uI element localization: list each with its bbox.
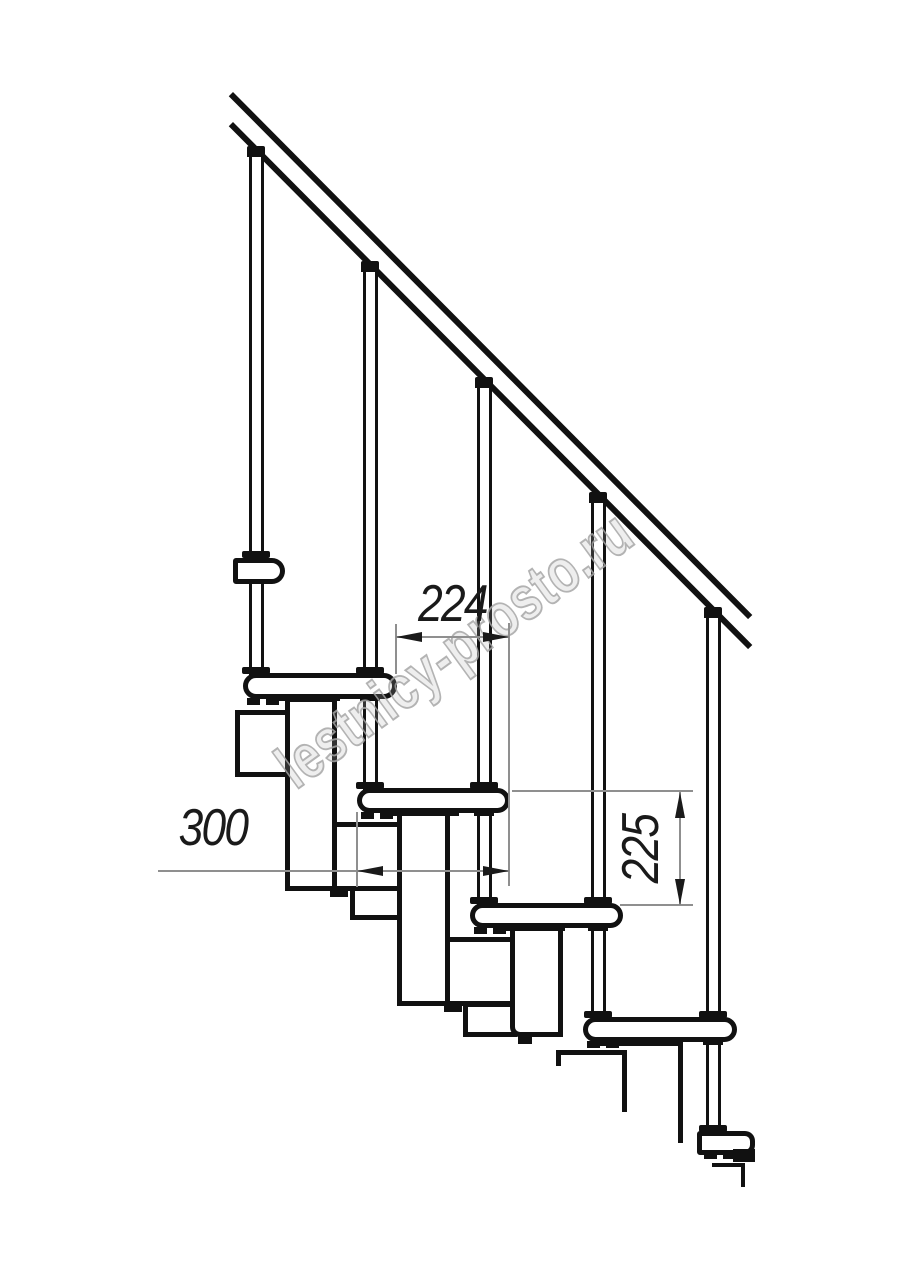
dimension-line-300 [158, 870, 510, 872]
dim-label-tread-depth: 300 [158, 802, 269, 854]
tread-tab [380, 812, 393, 819]
baluster-flange [584, 1011, 612, 1018]
module-box-3-right-edge [622, 1050, 627, 1112]
tread-tab [587, 1041, 600, 1048]
tread-tab [474, 927, 487, 934]
tread-tab [704, 1152, 717, 1159]
dim-arrow-left [396, 632, 422, 642]
baluster-flange [470, 782, 498, 789]
module-subbox-2 [463, 1002, 517, 1037]
baluster-flange [699, 1011, 727, 1018]
baluster-flange [584, 897, 612, 904]
module-neck-2 [397, 811, 450, 1006]
dim-label-going: 224 [404, 578, 500, 630]
tread-tab [266, 698, 279, 705]
dim-arrow-up [675, 792, 685, 818]
module-subbox-1 [350, 886, 403, 920]
tread-joint-strip [502, 925, 565, 931]
baluster-cap [475, 377, 493, 388]
module-tab [444, 1004, 462, 1012]
module-box-3-top-line [556, 1050, 627, 1055]
module-box-3-left-stub [556, 1050, 561, 1066]
tread-tab [493, 927, 506, 934]
baluster-pass-mark [588, 927, 608, 931]
extension-line [512, 790, 693, 792]
bottom-step-line-v [741, 1163, 745, 1187]
dim-arrow-left [357, 866, 383, 876]
tread-joint-strip [389, 810, 459, 816]
watermark-text: lestnicy-prosto.ru [211, 457, 700, 843]
baluster-flange [699, 1125, 727, 1132]
baluster-flange [242, 551, 270, 558]
baluster-5 [706, 618, 721, 1135]
tread-tab [606, 1041, 619, 1048]
baluster-flange [356, 782, 384, 789]
baluster-pass-mark [474, 812, 494, 816]
baluster-flange [242, 667, 270, 674]
dim-arrow-down [675, 879, 685, 905]
drawing-canvas: lestnicy-prosto.ru 224 300 225 [0, 0, 914, 1280]
baluster-1 [249, 157, 264, 677]
dim-arrow-right [483, 632, 509, 642]
baluster-cap [704, 607, 722, 618]
module-neck-3 [510, 926, 563, 1037]
module-neck-4-edge [678, 1040, 683, 1143]
module-box-2 [442, 937, 517, 1006]
baluster-cap [247, 146, 265, 157]
baluster-flange [470, 897, 498, 904]
dim-label-rise: 225 [615, 810, 667, 888]
baluster-cap [361, 261, 379, 272]
dim-arrow-right [483, 866, 509, 876]
tread-tab [361, 812, 374, 819]
tread-tab [247, 698, 260, 705]
baluster-pass-mark [703, 1041, 723, 1045]
tread-1 [233, 558, 285, 584]
module-tab [518, 1036, 532, 1044]
module-tab [330, 889, 348, 897]
tread-tab [733, 1149, 755, 1162]
extension-line [508, 623, 510, 886]
module-box-1 [328, 822, 403, 891]
tread-5 [583, 1017, 737, 1042]
